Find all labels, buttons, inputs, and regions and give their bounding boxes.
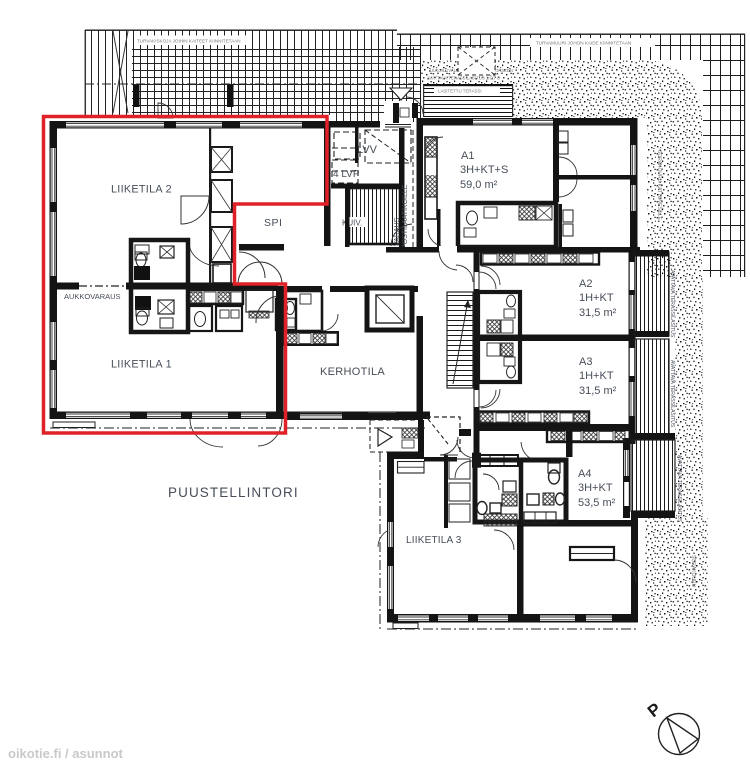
svg-text:AVATTAVA TERASSILASITUS: AVATTAVA TERASSILASITUS bbox=[669, 270, 675, 338]
svg-text:AVATTAVA TERASSILASITUS: AVATTAVA TERASSILASITUS bbox=[669, 360, 675, 428]
svg-text:4 LVP: 4 LVP bbox=[333, 169, 360, 180]
svg-text:1H+KT: 1H+KT bbox=[579, 370, 614, 382]
svg-text:LIIKETILA 3: LIIKETILA 3 bbox=[406, 535, 462, 546]
svg-text:A2: A2 bbox=[579, 278, 592, 290]
svg-text:59,0 m²: 59,0 m² bbox=[460, 179, 498, 191]
svg-text:53,5 m²: 53,5 m² bbox=[578, 497, 616, 509]
svg-text:31,5 m²: 31,5 m² bbox=[579, 307, 617, 319]
svg-text:AVATTAVA TERASSILASITUS 1.OT O: AVATTAVA TERASSILASITUS 1.OT O bbox=[427, 76, 501, 81]
svg-text:oikotie.fi / asunnot: oikotie.fi / asunnot bbox=[8, 746, 124, 761]
svg-text:1H+KT: 1H+KT bbox=[579, 292, 614, 304]
svg-text:KERHOTILA: KERHOTILA bbox=[320, 366, 385, 378]
svg-text:AUKKOVARAUS: AUKKOVARAUS bbox=[64, 292, 121, 301]
svg-text:31,5 m²: 31,5 m² bbox=[579, 385, 617, 397]
svg-text:3H+KT+S: 3H+KT+S bbox=[460, 164, 508, 176]
svg-text:TURVAKISKOJA JOIHIN KAITEET KI: TURVAKISKOJA JOIHIN KAITEET KIINNITETAAN bbox=[137, 39, 241, 44]
svg-text:POSTILAATIKOILLE: POSTILAATIKOILLE bbox=[402, 184, 409, 249]
svg-text:LASITETTU TERASSI: LASITETTU TERASSI bbox=[438, 88, 482, 93]
svg-text:A4: A4 bbox=[578, 468, 591, 480]
svg-text:A3: A3 bbox=[579, 356, 592, 368]
svg-text:SORAKOURU: SORAKOURU bbox=[690, 555, 696, 588]
svg-text:AVATTAVA TERASSILASITUS: AVATTAVA TERASSILASITUS bbox=[676, 455, 682, 523]
svg-text:VARAUS: VARAUS bbox=[394, 217, 401, 246]
svg-text:TURVAMUURI JOHON KAIDE KIINNIT: TURVAMUURI JOHON KAIDE KIINNITETAAN bbox=[536, 41, 631, 46]
svg-text:PUUSTELLINTORI: PUUSTELLINTORI bbox=[168, 485, 299, 500]
svg-text:LIIKETILA 1: LIIKETILA 1 bbox=[111, 359, 172, 371]
svg-text:LIIKETILA 2: LIIKETILA 2 bbox=[111, 184, 172, 196]
svg-text:SPI: SPI bbox=[264, 217, 282, 229]
svg-text:3H+KT: 3H+KT bbox=[578, 482, 613, 494]
svg-text:LVV: LVV bbox=[357, 144, 378, 156]
svg-text:A1: A1 bbox=[461, 150, 474, 162]
svg-text:SORAKOURU KATTOVESILLE: SORAKOURU KATTOVESILLE bbox=[656, 150, 662, 221]
